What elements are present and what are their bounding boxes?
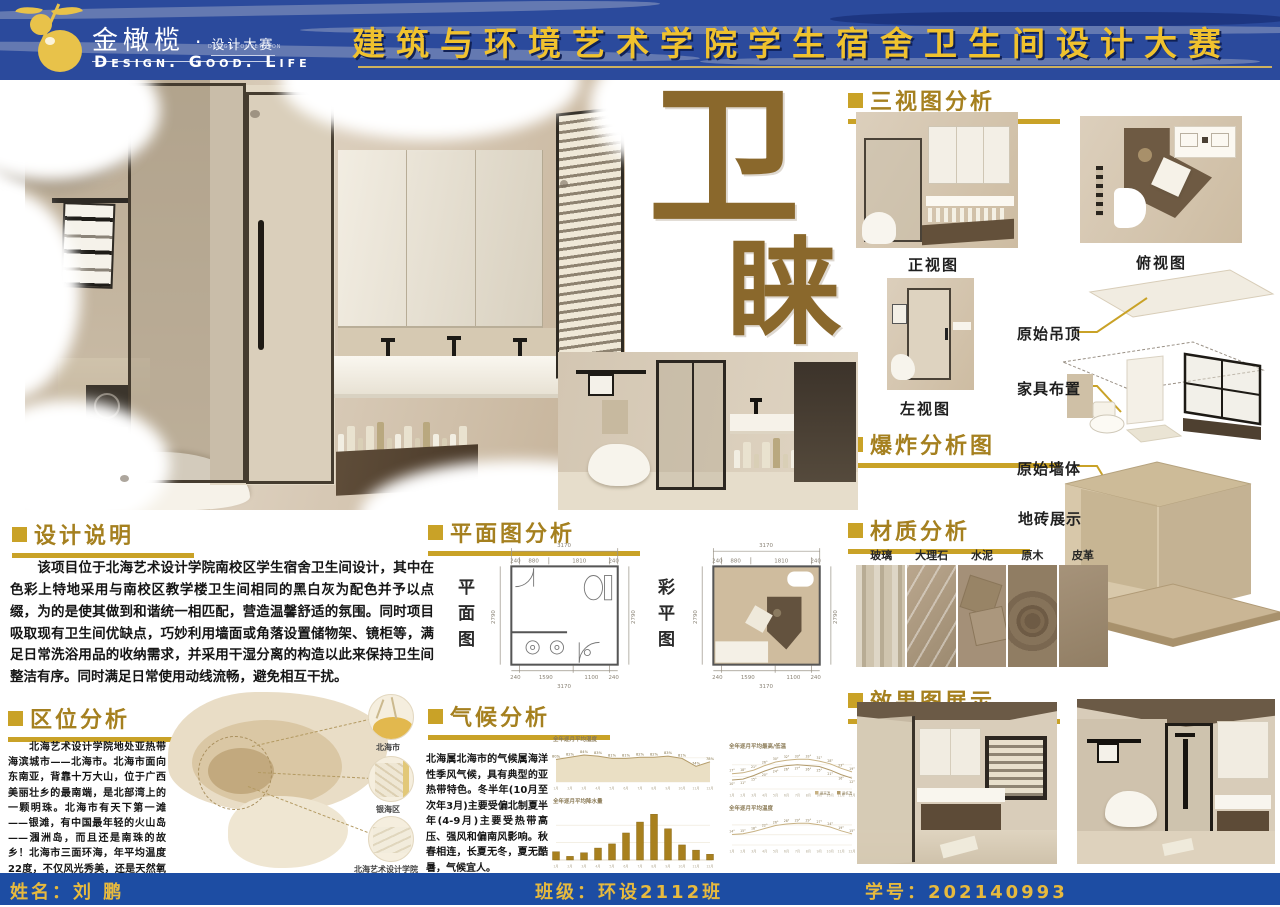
top-banner: 金橄榄 · 设计大赛 DESIGN COMPETITION Design. Go… [0, 0, 1280, 80]
svg-text:83%: 83% [594, 751, 603, 755]
svg-text:全年逐月平均湿度: 全年逐月平均湿度 [552, 735, 598, 743]
svg-text:29°: 29° [806, 818, 812, 822]
svg-text:240: 240 [810, 675, 821, 681]
svg-text:3月: 3月 [581, 865, 586, 869]
svg-text:3170: 3170 [557, 684, 571, 690]
section-title: 爆炸分析图 [870, 428, 995, 460]
svg-text:17°: 17° [729, 769, 735, 773]
hero-big-char-bottom: 睐 [726, 236, 842, 352]
svg-text:26°: 26° [762, 761, 768, 765]
svg-text:2月: 2月 [740, 794, 745, 798]
svg-text:240: 240 [712, 675, 723, 681]
svg-text:27°: 27° [816, 820, 822, 824]
svg-text:1月: 1月 [553, 787, 558, 791]
svg-text:18°: 18° [740, 768, 746, 772]
counter-top [1174, 126, 1236, 158]
wall-hung-toilet [588, 444, 650, 486]
svg-text:3170: 3170 [759, 543, 773, 549]
svg-text:28°: 28° [784, 819, 790, 823]
svg-text:8月: 8月 [651, 787, 656, 791]
svg-text:全年逐月平均最高/低温: 全年逐月平均最高/低温 [728, 742, 787, 750]
footer-bar: 姓名：刘 鹏 班级：环设2112班 学号：202140993 [0, 873, 1280, 905]
svg-text:19°: 19° [838, 826, 844, 830]
svg-text:880: 880 [730, 558, 741, 564]
map-inset-label: 北海市 [376, 742, 400, 753]
svg-text:1月: 1月 [729, 850, 734, 854]
shower-glass [1165, 723, 1213, 843]
faucet [754, 398, 758, 414]
svg-text:81%: 81% [678, 753, 687, 757]
svg-text:81%: 81% [622, 753, 631, 757]
svg-text:21°: 21° [827, 772, 833, 776]
floor-drain [1138, 148, 1152, 162]
svg-text:11月: 11月 [692, 787, 699, 791]
front-view-image [856, 112, 1018, 248]
svg-text:15°: 15° [849, 829, 855, 833]
design-note-body: 该项目位于北海艺术设计学院南校区学生宿舍卫生间设计，其中在色彩上特地采用与南校区… [10, 558, 434, 689]
svg-text:16°: 16° [838, 777, 844, 781]
shower-head [1175, 733, 1195, 737]
climate-body: 北海属北海市的气候属海洋性季风气候，具有典型的亚热带特色。冬半年(10月至次年3… [426, 752, 548, 876]
svg-text:1590: 1590 [741, 675, 755, 681]
cabinets [928, 126, 1010, 184]
svg-text:33°: 33° [795, 754, 801, 758]
svg-text:2月: 2月 [567, 787, 572, 791]
left-view-label: 左视图 [900, 398, 951, 419]
svg-text:5月: 5月 [773, 794, 778, 798]
olive-logo-icon [14, 4, 90, 76]
svg-text:全年逐月平均降水量: 全年逐月平均降水量 [552, 797, 603, 805]
svg-text:4月: 4月 [762, 850, 767, 854]
precipitation-bar-chart: 全年逐月平均降水量1月2月3月4月5月6月7月8月9月10月11月12月 [551, 795, 717, 869]
flush-panel [602, 400, 628, 434]
section-bullet-icon [428, 525, 443, 540]
cabinet [919, 728, 981, 776]
brand-subtitle-en: DESIGN COMPETITION [208, 44, 282, 50]
svg-text:2790: 2790 [491, 610, 497, 624]
svg-text:12月: 12月 [706, 787, 713, 791]
secondary-bathroom-render [558, 352, 858, 510]
section-bullet-icon [848, 93, 863, 108]
svg-text:22°: 22° [762, 824, 768, 828]
svg-text:84%: 84% [580, 750, 589, 754]
material-swatch-glass [856, 565, 905, 667]
svg-text:26°: 26° [773, 821, 779, 825]
svg-text:240: 240 [608, 558, 619, 564]
svg-text:24°: 24° [773, 769, 779, 773]
vanity-counter [334, 356, 562, 398]
svg-text:4月: 4月 [595, 865, 600, 869]
material-label: 皮革 [1058, 547, 1108, 563]
top-view-image [1080, 116, 1242, 243]
svg-text:1810: 1810 [572, 558, 586, 564]
svg-text:7月: 7月 [795, 794, 800, 798]
svg-text:1月: 1月 [553, 865, 558, 869]
svg-text:25°: 25° [816, 769, 822, 773]
faucet [386, 338, 390, 356]
svg-text:6月: 6月 [784, 850, 789, 854]
map-inset-beihai [368, 694, 414, 740]
svg-text:82%: 82% [636, 752, 645, 756]
footer-student-id: 学号：202140993 [865, 878, 1068, 904]
svg-text:最高温: 最高温 [820, 791, 831, 796]
mirror-cabinets [338, 150, 543, 328]
svg-text:33°: 33° [806, 754, 812, 758]
svg-text:32°: 32° [784, 755, 790, 759]
section-title: 区位分析 [30, 702, 130, 734]
svg-text:7月: 7月 [795, 850, 800, 854]
svg-text:9月: 9月 [665, 865, 670, 869]
ink-speck [250, 110, 260, 118]
svg-text:12月: 12月 [848, 850, 855, 854]
svg-text:31°: 31° [816, 756, 822, 760]
svg-text:3月: 3月 [751, 794, 756, 798]
banner-gold-rule [358, 66, 1272, 68]
svg-text:27°: 27° [795, 767, 801, 771]
material-swatch-cement [958, 565, 1007, 667]
material-label: 原木 [1007, 547, 1057, 563]
svg-text:5月: 5月 [609, 787, 614, 791]
material-label: 水泥 [957, 547, 1007, 563]
svg-text:11月: 11月 [837, 850, 844, 854]
svg-text:2月: 2月 [740, 850, 745, 854]
plan-line-label: 平面图 [452, 578, 477, 656]
counter [926, 196, 1014, 206]
svg-text:11°: 11° [740, 781, 746, 785]
svg-text:9月: 9月 [817, 850, 822, 854]
high-low-temp-line-chart: 全年逐月平均最高/低温1月2月3月4月5月6月7月8月9月10月11月12月17… [727, 740, 859, 798]
svg-text:18°: 18° [751, 827, 757, 831]
poster-title: 建筑与环境艺术学院学生宿舍卫生间设计大赛 [352, 17, 1277, 65]
under-shelf [921, 804, 1001, 830]
svg-text:26°: 26° [784, 768, 790, 772]
floor-plan-line: 3170 240 880 1810 240 2790 2790 240 1590… [486, 538, 638, 690]
section-bullet-icon [8, 711, 23, 726]
footer-name: 姓名：刘 鹏 [10, 878, 124, 904]
section-location: 区位分析 [8, 702, 190, 742]
svg-text:11月: 11月 [692, 865, 699, 869]
svg-text:9月: 9月 [665, 787, 670, 791]
avg-temp-line-chart: 全年逐月平均温度1月2月3月4月5月6月7月8月9月10月11月12月14°15… [727, 802, 859, 854]
svg-text:82%: 82% [650, 752, 659, 756]
material-labels: 玻璃 大理石 水泥 原木 皮革 [856, 547, 1108, 563]
location-map: 北海市 银海区 北海艺术设计学院 [168, 692, 408, 874]
material-label: 大理石 [906, 547, 956, 563]
section-design-note: 设计说明 [12, 518, 194, 558]
svg-text:880: 880 [528, 558, 539, 564]
explosion-label-ceiling: 原始吊顶 [1017, 323, 1081, 344]
poster-root: { "banner": { "brand": "金橄榄", "brand_dot… [0, 0, 1280, 905]
svg-text:20°: 20° [762, 773, 768, 777]
towel [588, 374, 614, 396]
render-thumbnail-2 [1077, 699, 1275, 864]
explosion-label-walls: 原始墙体 [1017, 458, 1081, 479]
svg-text:1590: 1590 [539, 675, 553, 681]
svg-text:26°: 26° [806, 768, 812, 772]
sink-side [953, 322, 971, 330]
toilet-top [1114, 188, 1146, 228]
svg-text:6月: 6月 [784, 794, 789, 798]
brand-tagline: Design. Good. Life [94, 52, 311, 71]
svg-text:8月: 8月 [806, 794, 811, 798]
svg-text:2790: 2790 [631, 610, 637, 624]
footer-class: 班级：环设2112班 [535, 878, 723, 904]
towel-rail [1096, 166, 1103, 216]
floor-plan-color: 3170 240 880 1810 240 2790 2790 240 1590… [688, 538, 840, 690]
glass-partition [656, 360, 726, 490]
svg-text:78%: 78% [706, 757, 715, 761]
svg-text:23°: 23° [838, 763, 844, 767]
svg-text:74%: 74% [692, 761, 701, 765]
section-title: 材质分析 [870, 514, 970, 546]
svg-text:240: 240 [810, 558, 821, 564]
brand-dot: · [195, 30, 201, 54]
svg-text:10°: 10° [729, 782, 735, 786]
svg-text:240: 240 [510, 675, 521, 681]
svg-text:81%: 81% [608, 753, 617, 757]
svg-text:2790: 2790 [693, 610, 699, 624]
svg-text:6月: 6月 [623, 787, 628, 791]
svg-text:15°: 15° [751, 778, 757, 782]
cabinet [1217, 721, 1269, 779]
svg-text:240: 240 [510, 558, 521, 564]
svg-text:12°: 12° [849, 780, 855, 784]
svg-text:1月: 1月 [729, 794, 734, 798]
svg-text:24°: 24° [827, 822, 833, 826]
svg-text:3170: 3170 [759, 684, 773, 690]
svg-text:14°: 14° [729, 830, 735, 834]
front-view-label: 正视图 [908, 254, 959, 275]
map-inset-label: 银海区 [376, 804, 400, 815]
humidity-area-chart: 全年逐月平均湿度1月2月3月4月5月6月7月8月9月10月11月12月80%82… [551, 733, 717, 791]
svg-text:82%: 82% [566, 752, 575, 756]
plan-color-label: 彩平图 [652, 578, 677, 656]
svg-text:4月: 4月 [762, 794, 767, 798]
svg-text:28°: 28° [827, 759, 833, 763]
towel [892, 304, 907, 324]
section-title: 气候分析 [450, 700, 550, 732]
section-bullet-icon [848, 523, 863, 538]
explosion-label-tiles: 地砖展示 [1018, 508, 1082, 529]
svg-text:2月: 2月 [567, 865, 572, 869]
material-swatch-leather [1059, 565, 1108, 667]
section-bullet-icon [12, 527, 27, 542]
map-inset-campus [368, 816, 414, 862]
render-thumbnail-1 [857, 702, 1057, 864]
tall-cabinet [794, 362, 856, 482]
svg-text:6月: 6月 [623, 865, 628, 869]
material-swatch-wood [1008, 565, 1057, 667]
towel [1097, 743, 1119, 763]
svg-text:83%: 83% [664, 751, 673, 755]
svg-text:19°: 19° [849, 767, 855, 771]
shower-column [1183, 739, 1188, 809]
svg-text:8月: 8月 [651, 865, 656, 869]
explosion-label-furniture: 家具布置 [1017, 378, 1081, 399]
svg-text:21°: 21° [751, 765, 757, 769]
svg-text:10月: 10月 [827, 850, 834, 854]
svg-text:240: 240 [608, 675, 619, 681]
faucet [518, 338, 522, 356]
shower-door-handle [258, 220, 264, 350]
svg-text:3月: 3月 [751, 850, 756, 854]
material-label: 玻璃 [856, 547, 906, 563]
dark-shelf [922, 219, 1014, 245]
faucet [452, 336, 456, 356]
svg-text:3月: 3月 [581, 787, 586, 791]
svg-text:12月: 12月 [706, 865, 713, 869]
left-view-image [887, 278, 974, 390]
glass-panel [857, 716, 915, 864]
section-bullet-icon [428, 709, 443, 724]
svg-text:全年逐月平均温度: 全年逐月平均温度 [728, 804, 774, 812]
svg-text:80%: 80% [552, 755, 561, 759]
svg-text:7月: 7月 [637, 865, 642, 869]
svg-text:5月: 5月 [609, 865, 614, 869]
svg-text:2790: 2790 [833, 610, 839, 624]
svg-text:10月: 10月 [678, 787, 685, 791]
material-swatches [856, 565, 1108, 667]
section-title: 设计说明 [34, 518, 134, 550]
svg-text:5月: 5月 [773, 850, 778, 854]
vanity [917, 788, 1005, 802]
svg-text:8月: 8月 [806, 850, 811, 854]
ink-speck [120, 475, 129, 482]
svg-text:29°: 29° [795, 818, 801, 822]
svg-text:1810: 1810 [774, 558, 788, 564]
toilet [862, 212, 896, 244]
svg-text:15°: 15° [740, 829, 746, 833]
svg-text:4月: 4月 [595, 787, 600, 791]
door-handle [945, 328, 948, 340]
hero-big-char-top: 卫 [648, 82, 800, 234]
svg-text:3170: 3170 [557, 543, 571, 549]
backsplash [338, 328, 563, 358]
svg-text:240: 240 [712, 558, 723, 564]
ink-speck [560, 180, 568, 188]
svg-text:1100: 1100 [584, 675, 598, 681]
map-inset-yinhai [368, 756, 414, 802]
svg-text:30°: 30° [773, 757, 779, 761]
svg-text:最低温: 最低温 [842, 791, 853, 796]
svg-text:1100: 1100 [786, 675, 800, 681]
svg-text:7月: 7月 [637, 787, 642, 791]
sink [1215, 795, 1271, 809]
material-swatch-marble [907, 565, 956, 667]
svg-text:10月: 10月 [678, 865, 685, 869]
